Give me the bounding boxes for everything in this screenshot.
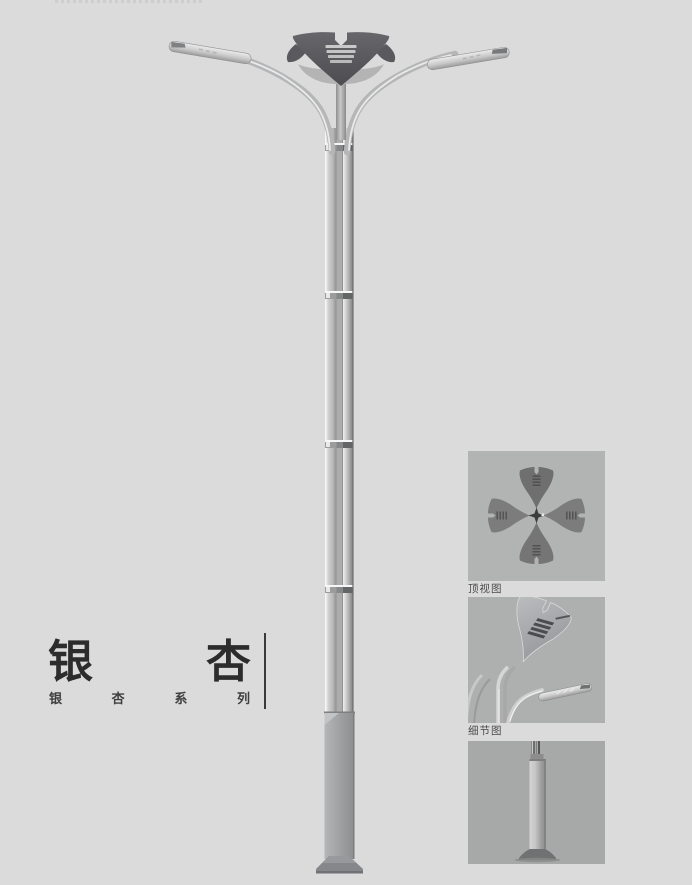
ginkgo-leaf-left (488, 499, 530, 533)
ginkgo-leaf-right (544, 499, 586, 533)
lamp-head-right (427, 47, 511, 71)
product-title: 银 杏 (48, 639, 251, 684)
subtitle-char: 列 (237, 691, 250, 707)
catalog-page: 银 杏 银 杏 系 列 (0, 0, 692, 885)
ginkgo-leaf-closeup (498, 597, 574, 672)
panel-detail-view (468, 597, 605, 723)
subtitle-char: 银 (49, 691, 62, 707)
top-view-image (468, 451, 605, 581)
crown-stem (336, 80, 346, 140)
product-series-subtitle: 银 杏 系 列 (49, 691, 250, 707)
small-lamp-head (538, 683, 592, 702)
title-char-right: 杏 (206, 639, 251, 684)
subtitle-char: 杏 (112, 691, 125, 707)
panel-base-view (468, 741, 605, 864)
pole-base (316, 712, 363, 874)
panel-top-view (468, 451, 605, 581)
title-char-left: 银 (48, 639, 93, 684)
title-divider-line (264, 633, 266, 709)
crown-ginkgo-leaf (287, 32, 395, 86)
caption-top-view: 顶视图 (468, 584, 503, 596)
caption-detail-view: 细节图 (468, 726, 503, 738)
base-plate-view (515, 849, 561, 862)
base-view-image (468, 741, 605, 864)
pole-shaft (325, 128, 354, 714)
lamp-head-left (168, 41, 252, 65)
ginkgo-leaf-top (520, 467, 554, 509)
detail-view-image (468, 597, 605, 723)
base-pole-tubes (531, 741, 544, 759)
ginkgo-leaf-bottom (520, 523, 554, 565)
subtitle-char: 系 (174, 691, 187, 707)
base-column (530, 759, 546, 853)
